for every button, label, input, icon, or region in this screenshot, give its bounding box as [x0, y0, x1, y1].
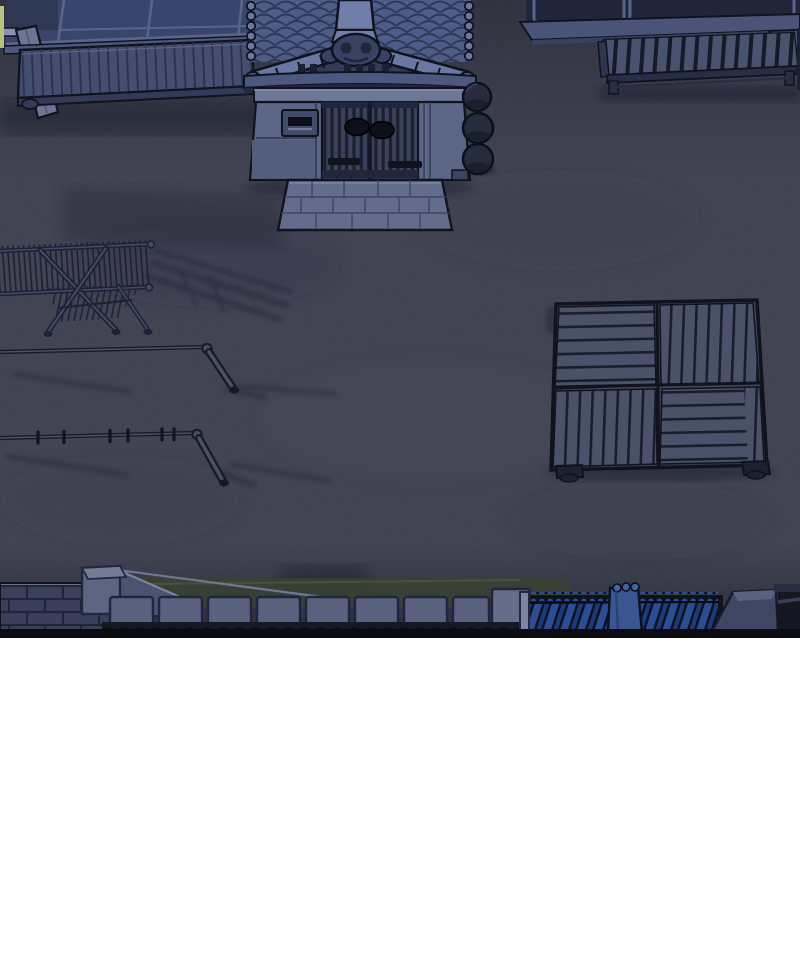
comic-page	[0, 0, 800, 974]
gate-ground-shadow	[64, 188, 280, 248]
fence-mid-post	[608, 583, 642, 633]
fence-left-post	[520, 592, 529, 634]
deck-foot	[22, 99, 38, 109]
door-center-stile	[368, 102, 372, 180]
door-bottom-rail	[322, 170, 418, 178]
door-lock-bar-left	[328, 158, 360, 165]
pole-foot	[229, 386, 239, 393]
gate-left-pillar	[250, 102, 322, 180]
gate-doors	[322, 102, 422, 180]
pole-foot	[219, 479, 229, 486]
door-lock-bar-right	[388, 161, 422, 168]
pallet-quadrant-bl	[553, 389, 657, 467]
right-wall-cap	[774, 584, 800, 592]
pallet-quadrant-tr	[660, 303, 759, 385]
window-glass-left	[6, 0, 58, 30]
highlight-sliver	[0, 6, 4, 48]
wood-pallet	[545, 300, 770, 482]
stone-spheres	[463, 83, 493, 174]
ridge-beam-panel	[336, 0, 374, 30]
stone-step	[278, 180, 452, 230]
comic-panel	[0, 0, 800, 638]
pallet-quadrant-tl	[555, 305, 656, 389]
panel-bottom-border	[0, 629, 800, 638]
gate-right-pillar	[418, 102, 470, 180]
bench-shadow	[600, 86, 800, 102]
mail-slot	[282, 110, 318, 136]
courtyard-scene	[0, 0, 800, 638]
pallet-quadrant-br	[660, 387, 764, 464]
